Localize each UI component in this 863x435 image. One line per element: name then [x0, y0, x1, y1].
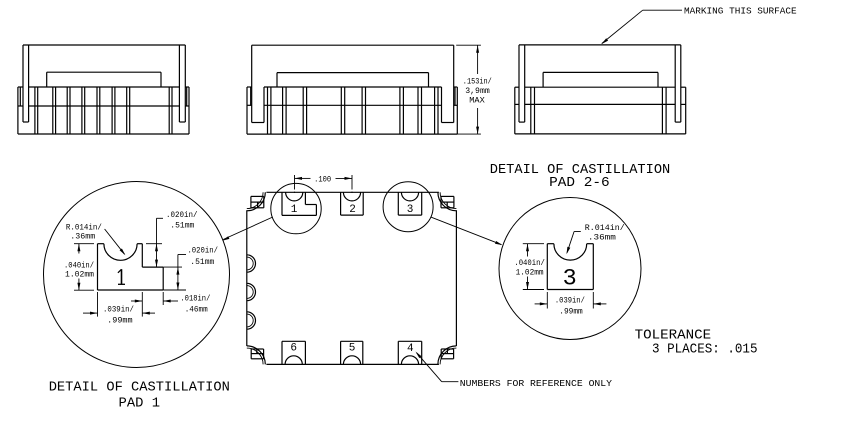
svg-text:.039in/: .039in/ [555, 296, 585, 306]
svg-text:1: 1 [291, 204, 298, 216]
svg-text:.020in/: .020in/ [166, 210, 198, 220]
svg-text:6: 6 [290, 343, 297, 355]
svg-text:.039in/: .039in/ [103, 304, 134, 314]
svg-text:R.014in/: R.014in/ [66, 223, 102, 233]
svg-text:.100: .100 [314, 176, 331, 185]
svg-text:.36mm: .36mm [70, 232, 95, 241]
svg-text:4: 4 [407, 343, 414, 355]
svg-text:.040in/: .040in/ [514, 258, 545, 268]
svg-text:.99mm: .99mm [107, 317, 133, 326]
svg-text:.51mm: .51mm [190, 258, 214, 267]
svg-text:DETAIL OF CASTILLATION: DETAIL OF CASTILLATION [49, 380, 230, 396]
svg-text:NUMBERS FOR REFERENCE ONLY: NUMBERS FOR REFERENCE ONLY [460, 378, 612, 389]
svg-text:3: 3 [407, 204, 414, 216]
svg-text:.020in/: .020in/ [187, 246, 218, 256]
svg-text:2: 2 [349, 204, 356, 216]
svg-text:R.014in/: R.014in/ [585, 223, 625, 233]
svg-text:.51mm: .51mm [170, 222, 194, 231]
svg-text:MARKING THIS SURFACE: MARKING THIS SURFACE [684, 6, 797, 17]
svg-text:.99mm: .99mm [559, 308, 583, 317]
svg-text:MAX: MAX [469, 97, 485, 106]
svg-text:.36mm: .36mm [588, 233, 616, 242]
svg-text:.153in/: .153in/ [463, 76, 492, 86]
svg-text:.018in/: .018in/ [180, 294, 210, 304]
svg-text:PAD 1: PAD 1 [119, 396, 161, 412]
svg-text:1.02mm: 1.02mm [516, 269, 544, 278]
svg-text:1.02mm: 1.02mm [65, 270, 94, 279]
svg-text:3: 3 [563, 265, 577, 292]
svg-text:5: 5 [349, 343, 356, 355]
svg-text:3 PLACES: .015: 3 PLACES: .015 [652, 342, 758, 358]
svg-text:.040in/: .040in/ [64, 260, 94, 270]
svg-text:3,9mm: 3,9mm [465, 87, 490, 96]
svg-text:PAD 2-6: PAD 2-6 [549, 175, 610, 191]
svg-text:.46mm: .46mm [185, 305, 208, 314]
